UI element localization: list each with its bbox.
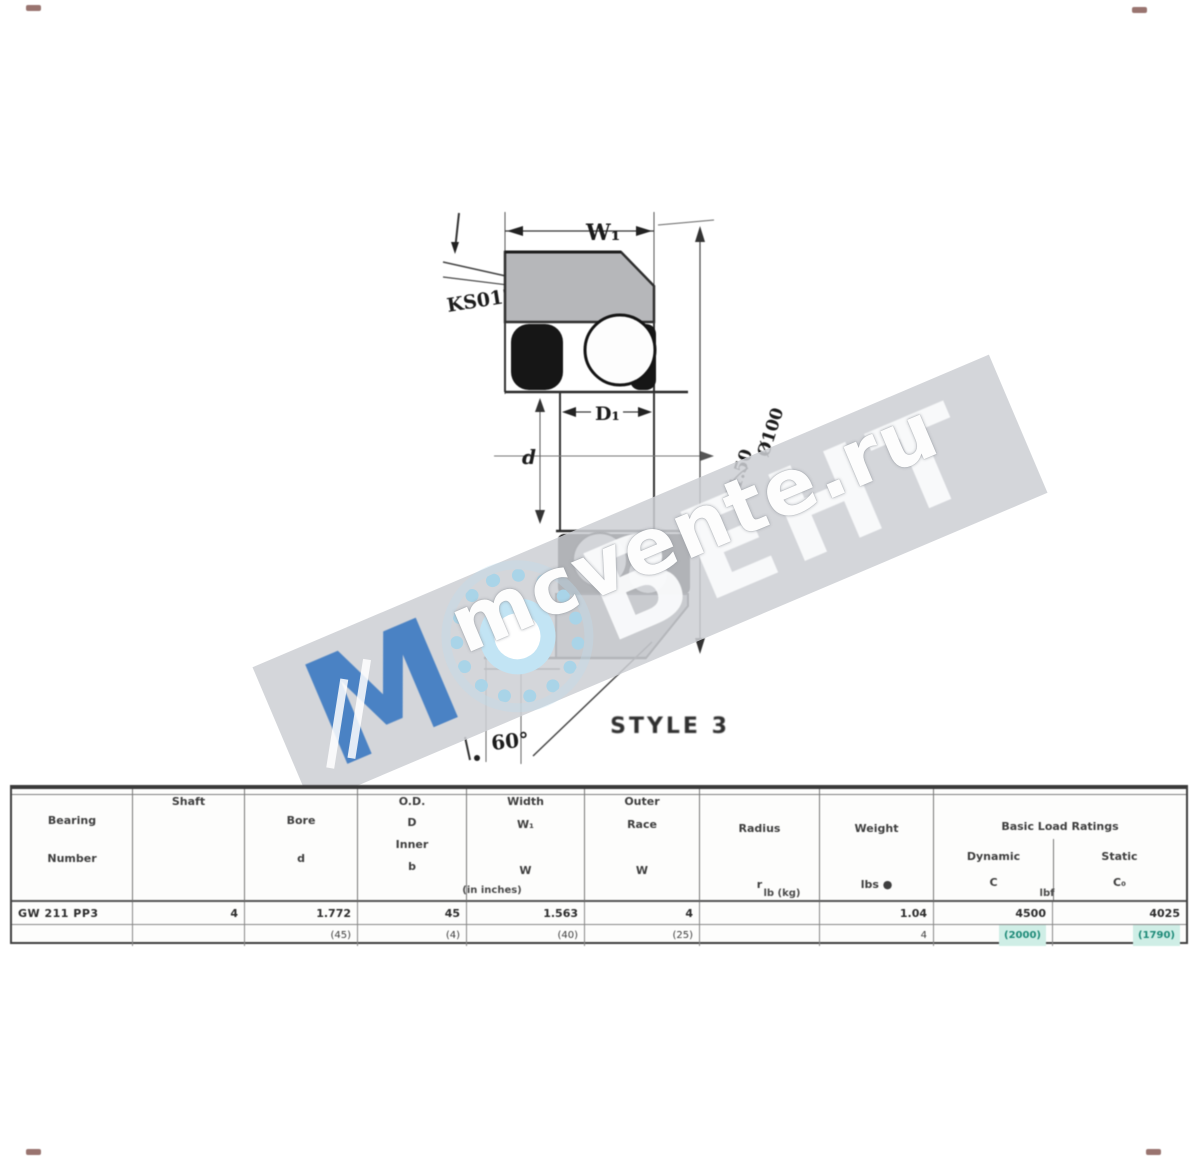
cell-part-number-metric (12, 925, 133, 946)
cell-radius (700, 902, 820, 925)
header-label: Radius (700, 823, 819, 835)
header-shaft: Shaft (133, 789, 245, 902)
header-label: O.D. (358, 796, 466, 808)
header-label: D (358, 817, 466, 829)
cell-weight-metric: 4 (820, 925, 934, 946)
cell-od: 45 (358, 902, 467, 925)
cell-width-metric: (40) (467, 925, 585, 946)
cell-static-rating-metric: (1790) (1053, 925, 1186, 946)
header-label: W₁ (467, 819, 584, 831)
cell-bore: 1.772 (245, 902, 358, 925)
cell-part-number: GW 211 PP3 (12, 902, 133, 925)
header-label: b (358, 861, 466, 873)
header-label: Bearing (12, 815, 132, 827)
header-weight: Weight lbs ● (820, 789, 934, 902)
header-label: W (467, 865, 584, 877)
header-outer-race: Outer Race W (585, 789, 700, 902)
cell-shaft-metric (133, 925, 245, 946)
catalog-page: { "watermark": { "brand_m": "М", "brand_… (0, 0, 1200, 1165)
header-label: Number (12, 853, 132, 865)
d-label: d (522, 445, 536, 469)
units-note-inches: (in inches) (412, 885, 572, 896)
header-label: Shaft (133, 796, 244, 808)
units-note-lbf: lbf (967, 888, 1127, 899)
cell-od-metric: (4) (358, 925, 467, 946)
cell-bore-metric: (45) (245, 925, 358, 946)
header-label: Race (585, 819, 699, 831)
spec-table: Bearing Number Shaft Bore d O.D. D Inner… (10, 785, 1188, 944)
cell-width: 1.563 (467, 902, 585, 925)
cell-shaft: 4 (133, 902, 245, 925)
header-label: Bore (245, 815, 357, 827)
w1-label: W₁ (585, 220, 620, 246)
header-label: Weight (820, 823, 933, 835)
header-label: d (245, 853, 357, 865)
header-radius: Radius r (700, 789, 820, 902)
header-bearing-number: Bearing Number (12, 789, 133, 902)
cell-weight: 1.04 (820, 902, 934, 925)
units-note-kg: lb (kg) (702, 888, 862, 899)
header-label: Inner (358, 839, 466, 851)
d1-label: D₁ (595, 403, 620, 425)
header-load-ratings-group: Basic Load Ratings Dynamic Static C C₀ (934, 789, 1186, 902)
style-label: STYLE 3 (575, 714, 765, 739)
header-label: Outer (585, 796, 699, 808)
group-title: Basic Load Ratings (934, 821, 1186, 833)
sub-header-static: Static (1053, 851, 1186, 863)
cell-outer-race: 4 (585, 902, 700, 925)
cell-outer-race-metric: (25) (585, 925, 700, 946)
header-label: W (585, 865, 699, 877)
cell-dynamic-rating: 4500 (934, 902, 1053, 925)
highlighted-value: (2000) (999, 925, 1046, 946)
angle-label: 60° (490, 727, 530, 755)
upper-bearing-section (505, 252, 688, 392)
header-label: Width (467, 796, 584, 808)
highlighted-value: (1790) (1133, 925, 1180, 946)
cell-static-rating: 4025 (1053, 902, 1186, 925)
header-bore: Bore d (245, 789, 358, 902)
cell-dynamic-rating-metric: (2000) (934, 925, 1053, 946)
sub-header-dynamic: Dynamic (934, 851, 1053, 863)
cell-radius-metric (700, 925, 820, 946)
